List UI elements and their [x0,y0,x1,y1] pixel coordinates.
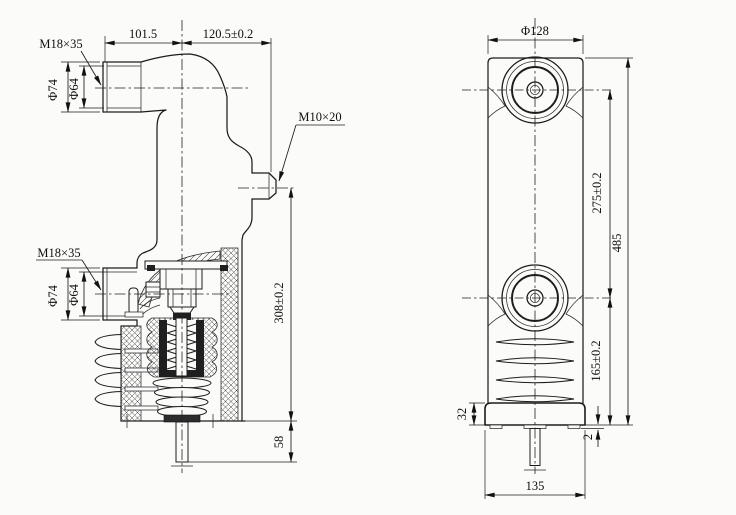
engineering-drawing: 101.5 120.5±0.2 Φ74 Φ64 Φ74 Φ64 M18×35 M… [0,0,736,515]
dim-width-left-label: 101.5 [129,27,157,41]
stud-label: M10×20 [298,110,341,124]
dim-total-height-label: 485 [610,234,624,253]
dia64-upper-label: Φ64 [67,77,81,99]
dim-foot-height-label: 2 [581,434,595,440]
dim-flange-width-label: 135 [526,479,545,493]
right-wall-section-hatch [221,248,238,421]
dim-height-main-label: 308±0.2 [272,282,286,323]
dim-stem-label: 58 [272,436,286,449]
right-view: Φ128 485 275±0.2 165±0.2 32 2 135 [455,18,633,499]
dia64-lower-label: Φ64 [67,283,81,305]
thread-lower-label: M18×35 [37,246,80,260]
thread-upper-label: M18×35 [39,37,82,51]
upper-terminal-boss [103,62,141,112]
dim-dia-top-label: Φ128 [521,24,549,38]
dia74-upper-label: Φ74 [46,78,60,100]
dim-centers-span-label: 275±0.2 [590,172,604,213]
dim-lower-span-label: 165±0.2 [589,340,603,381]
dim-flange-height-label: 32 [455,408,469,421]
left-view: 101.5 120.5±0.2 Φ74 Φ64 Φ74 Φ64 M18×35 M… [36,20,345,473]
drawing-sheet: 101.5 120.5±0.2 Φ74 Φ64 Φ74 Φ64 M18×35 M… [0,0,736,515]
dia74-lower-label: Φ74 [46,284,60,306]
dim-width-right-label: 120.5±0.2 [203,27,254,41]
stud-m10 [252,173,276,199]
